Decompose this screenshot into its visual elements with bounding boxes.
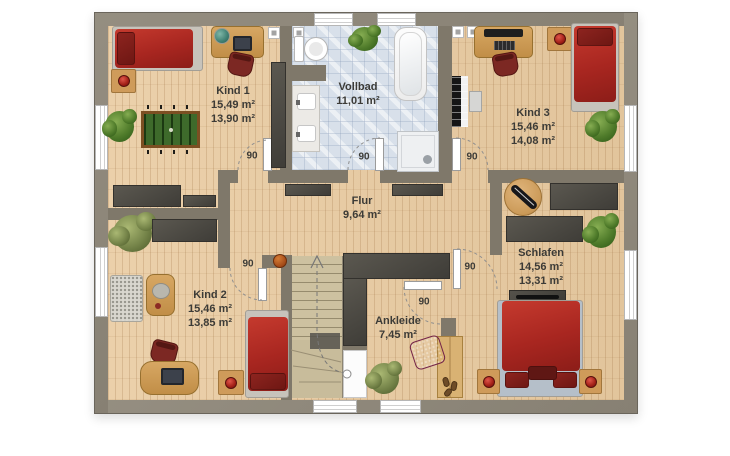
- toilet-tank: [294, 36, 304, 62]
- room-name: Vollbad: [336, 80, 379, 94]
- piano-keyboard: [452, 76, 468, 127]
- door-width-label-vollbad: 90: [358, 152, 369, 163]
- schlafen-nightstand-left: [477, 369, 500, 394]
- room-label-vollbad: Vollbad 11,01 m²: [336, 80, 379, 108]
- stairwell-void: [343, 350, 367, 398]
- door-leaf-vollbad: [375, 138, 384, 171]
- room-area-net: 14,08 m²: [511, 134, 555, 148]
- stair-lower-flight-shadow: [310, 333, 340, 349]
- lamp-icon: [225, 377, 237, 389]
- piano-bench: [469, 91, 482, 112]
- bathtub: [394, 27, 427, 101]
- wall-vollbad-kind3: [438, 26, 452, 183]
- toilet-bowl: [304, 37, 328, 61]
- room-area-gross: 15,46 m²: [188, 302, 232, 316]
- room-area-gross: 11,01 m²: [336, 94, 379, 108]
- kind3-keyboard: [494, 41, 515, 50]
- plant-icon: [105, 111, 134, 142]
- door-width-label-ankleide: 90: [418, 297, 429, 308]
- plant-icon: [351, 27, 378, 51]
- wall-flur-west: [218, 170, 230, 268]
- door-width-label-kind2: 90: [242, 259, 253, 270]
- room-area-gross: 15,46 m²: [511, 120, 555, 134]
- schlafen-double-bed: [497, 300, 583, 397]
- plant-icon: [588, 111, 617, 142]
- room-area-gross: 9,64 m²: [343, 208, 381, 222]
- exterior-wall-bottom: [95, 400, 637, 413]
- exterior-wall-left: [95, 13, 108, 413]
- kind2-bed: [245, 310, 289, 398]
- globe-icon: [214, 28, 230, 44]
- foosball-feet: [147, 105, 195, 109]
- kind2-lounge-sofa: [110, 275, 143, 322]
- kind1-wardrobe-tall: [271, 62, 286, 168]
- kind1-wardrobe-south: [113, 185, 181, 207]
- room-label-schlafen: Schlafen 14,56 m² 13,31 m²: [518, 246, 564, 288]
- kind2-wardrobe: [152, 219, 217, 242]
- room-name: Kind 2: [188, 288, 232, 302]
- room-name: Flur: [343, 194, 381, 208]
- room-label-flur: Flur 9,64 m²: [343, 194, 381, 222]
- foosball-table: [141, 111, 200, 148]
- exterior-wall-top: [95, 13, 637, 26]
- flur-sideboard-left: [285, 184, 331, 196]
- wall-vollbad-south-left: [292, 170, 348, 183]
- window: [313, 400, 357, 413]
- kind3-bed: [571, 23, 619, 112]
- room-area-net: 13,90 m²: [211, 112, 255, 126]
- ankleide-wardrobe-north: [343, 253, 450, 279]
- basketball-icon: [273, 254, 287, 268]
- door-width-label-kind1: 90: [246, 151, 257, 162]
- room-label-ankleide: Ankleide 7,45 m²: [375, 314, 421, 342]
- window: [95, 105, 108, 170]
- room-label-kind1: Kind 1 15,49 m² 13,90 m²: [211, 84, 255, 126]
- wall-flur-east: [490, 183, 502, 255]
- wall-toilet-nook: [292, 65, 326, 81]
- door-width-label-kind3: 90: [466, 152, 477, 163]
- kind3-nightstand: [547, 27, 572, 51]
- window: [95, 247, 108, 317]
- radiator-icon: [268, 27, 280, 39]
- plant-icon: [586, 216, 616, 248]
- shower: [397, 131, 439, 172]
- room-area-net: 13,31 m²: [518, 274, 564, 288]
- lamp-icon: [554, 33, 566, 45]
- door-width-label-schlafen: 90: [464, 262, 475, 273]
- room-area-gross: 7,45 m²: [375, 328, 421, 342]
- kind2-laptop: [161, 368, 184, 385]
- lamp-icon: [483, 376, 495, 388]
- plant-icon: [369, 363, 399, 394]
- kind1-bed: [112, 26, 203, 71]
- exterior-wall-right: [624, 13, 637, 413]
- room-name: Ankleide: [375, 314, 421, 328]
- foosball-feet: [147, 150, 195, 154]
- wall-flur-north-2: [268, 170, 292, 183]
- lamp-icon: [585, 376, 597, 388]
- kind1-laptop: [233, 36, 252, 51]
- window: [624, 250, 637, 320]
- room-label-kind2: Kind 2 15,46 m² 13,85 m²: [188, 288, 232, 330]
- kind1-wardrobe-south-2: [183, 195, 216, 207]
- kind2-nightstand: [218, 370, 244, 395]
- kind3-monitor: [484, 29, 523, 37]
- room-area-net: 13,85 m²: [188, 316, 232, 330]
- washbasin-vanity: [292, 85, 320, 152]
- ankleide-wardrobe-west: [343, 278, 367, 346]
- door-leaf-schlafen: [453, 249, 461, 289]
- schlafen-wardrobe-north: [550, 183, 618, 210]
- window: [380, 400, 421, 413]
- floor-plan-page: { "plan": { "rooms": [ { "key": "kind1",…: [0, 0, 730, 456]
- door-leaf-kind2: [258, 268, 267, 301]
- door-leaf-ankleide: [404, 281, 442, 290]
- room-area-gross: 14,56 m²: [518, 260, 564, 274]
- window: [624, 105, 637, 172]
- skateboard-icon: [509, 183, 538, 210]
- plant-icon: [113, 215, 152, 252]
- schlafen-wardrobe-2: [506, 216, 583, 242]
- room-label-kind3: Kind 3 15,46 m² 14,08 m²: [511, 106, 555, 148]
- flur-sideboard-right: [392, 184, 443, 196]
- kind1-nightstand: [111, 69, 136, 93]
- room-name: Kind 1: [211, 84, 255, 98]
- wall-kind3-south: [488, 170, 624, 183]
- door-leaf-kind3: [452, 138, 461, 171]
- room-name: Kind 3: [511, 106, 555, 120]
- room-name: Schlafen: [518, 246, 564, 260]
- wall-flur-north-1: [230, 170, 238, 183]
- window: [314, 13, 353, 26]
- kind2-coffee-table: [146, 274, 175, 316]
- schlafen-nightstand-right: [579, 369, 602, 394]
- room-area-gross: 15,49 m²: [211, 98, 255, 112]
- side-table-skateboard: [504, 178, 542, 216]
- radiator-icon: [452, 26, 464, 38]
- lamp-icon: [118, 75, 130, 87]
- window: [377, 13, 416, 26]
